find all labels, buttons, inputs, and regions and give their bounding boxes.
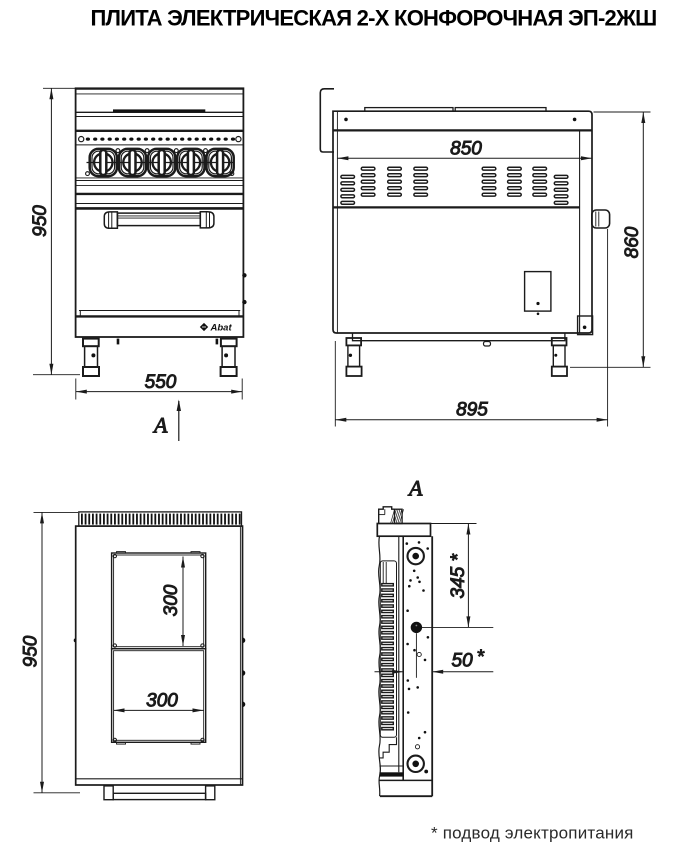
svg-text:* подвод электропитания: * подвод электропитания [431, 824, 634, 843]
svg-text:950: 950 [30, 205, 51, 237]
svg-text:300: 300 [161, 584, 182, 616]
svg-text:A: A [152, 413, 168, 438]
svg-text:950: 950 [21, 635, 42, 667]
svg-text:*: * [477, 647, 485, 668]
svg-text:ПЛИТА ЭЛЕКТРИЧЕСКАЯ 2-Х КОНФОР: ПЛИТА ЭЛЕКТРИЧЕСКАЯ 2-Х КОНФОРОЧНАЯ ЭП-2… [90, 6, 656, 31]
svg-text:860: 860 [622, 226, 643, 258]
svg-text:Abat: Abat [210, 323, 233, 334]
svg-text:850: 850 [450, 139, 482, 160]
svg-text:895: 895 [456, 400, 488, 421]
svg-text:50: 50 [452, 651, 474, 672]
svg-text:550: 550 [145, 372, 177, 393]
svg-text:A: A [407, 476, 423, 501]
svg-text:300: 300 [146, 691, 178, 712]
svg-text:345 *: 345 * [448, 554, 469, 599]
